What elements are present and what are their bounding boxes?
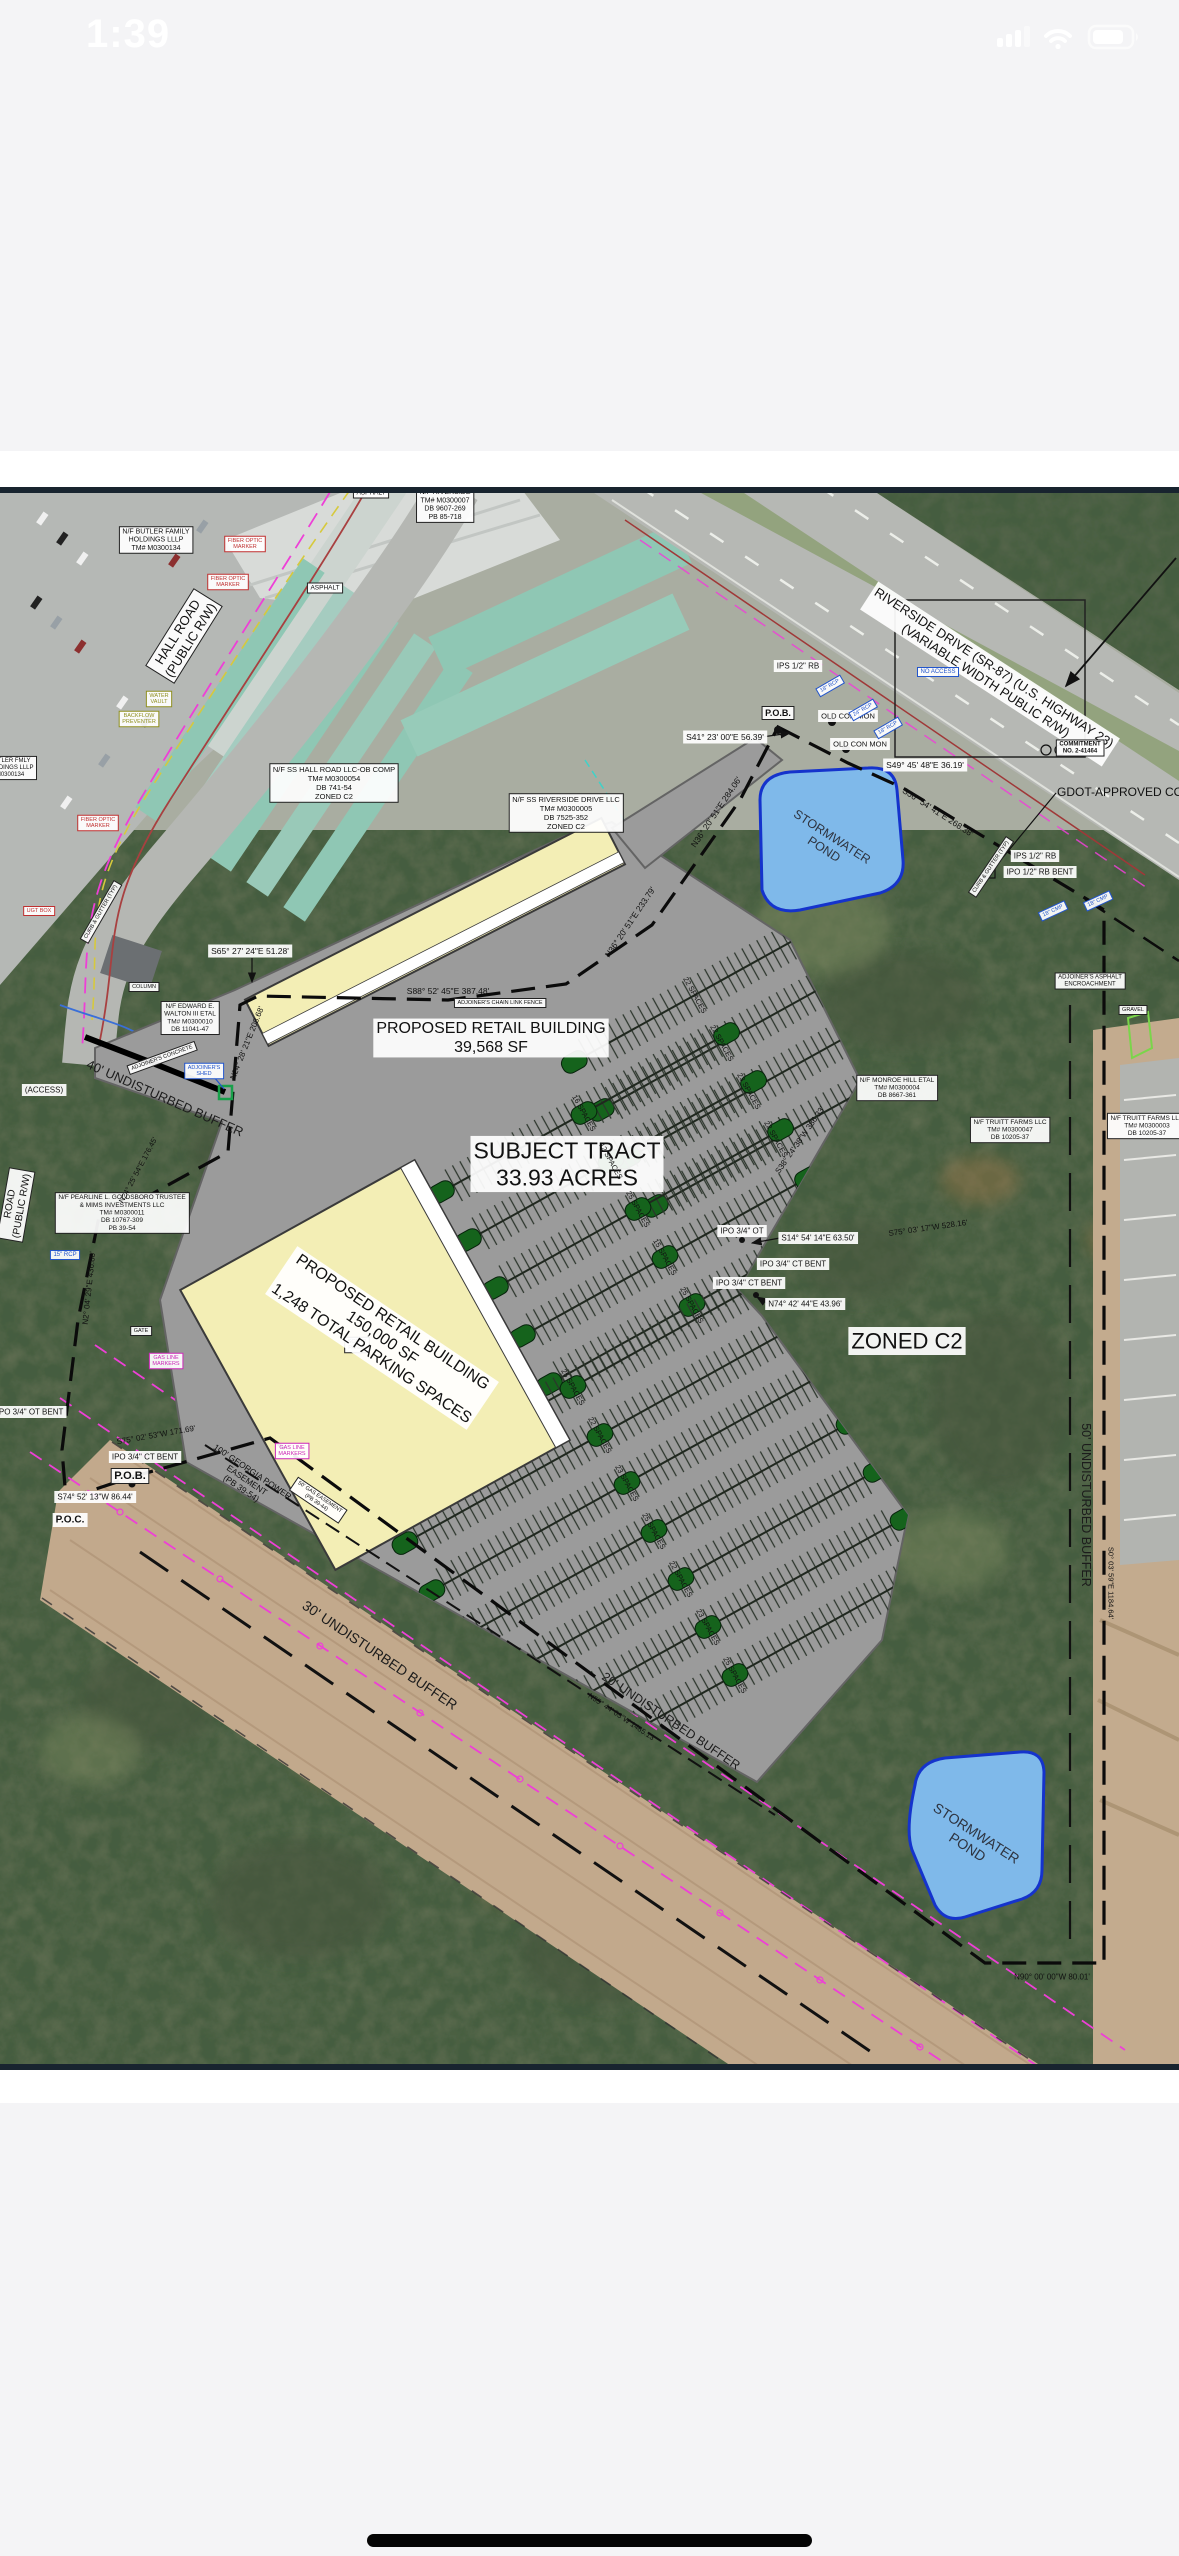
svg-text:TM# M0300010: TM# M0300010 [167, 1018, 213, 1025]
label-bearing-s0: S0° 03' 59"E 1184.64' [1107, 1547, 1116, 1620]
label-monroe-parcel: N/F MONROE HILL ETALTM# M0300004DB 8667-… [857, 1075, 938, 1100]
svg-text:PROPOSED RETAIL BUILDING: PROPOSED RETAIL BUILDING [376, 1020, 605, 1037]
existing-development-right [1093, 1018, 1179, 2070]
svg-text:DB 10205-37: DB 10205-37 [991, 1134, 1030, 1141]
svg-text:SHED: SHED [196, 1071, 211, 1077]
label-ips-rb-1: IPS 1/2" RB [774, 660, 822, 672]
label-adjoiner-asphalt: ADJOINER'S ASPHALTENCROACHMENT [1055, 973, 1125, 989]
svg-text:MARKER: MARKER [86, 823, 110, 829]
label-water-vault: WATERVAULT [146, 691, 171, 706]
svg-text:FIBER OPTIC: FIBER OPTIC [211, 576, 246, 582]
svg-text:N74° 42' 44"E 43.96': N74° 42' 44"E 43.96' [768, 1300, 842, 1309]
label-butler-parcel-2: BUTLER FMLYHOLDINGS LLLPM0300134 [0, 756, 37, 779]
label-rcp-15: 15" RCP [50, 1251, 79, 1260]
label-old-con-mon-2: OLD CON MON [830, 738, 890, 750]
svg-text:N/F BUTLER FAMILY: N/F BUTLER FAMILY [122, 528, 189, 535]
svg-text:TM# M0300047: TM# M0300047 [987, 1127, 1033, 1134]
label-no-access: NO ACCESS [917, 668, 958, 677]
label-truitt-parcel-1: N/F TRUITT FARMS LLCTM# M0300047DB 10205… [970, 1117, 1049, 1142]
svg-text:DB 10205-37: DB 10205-37 [1128, 1130, 1167, 1137]
site-plan-document[interactable]: N/F RIVERSIDETM# M0300007DB 9607-269PB 8… [0, 451, 1179, 2103]
svg-text:ADJOINER'S ASPHALT: ADJOINER'S ASPHALT [1058, 974, 1122, 980]
svg-text:TM# M0300054: TM# M0300054 [308, 774, 361, 783]
label-gate: GATE [131, 1327, 152, 1336]
svg-text:P.O.B.: P.O.B. [765, 708, 791, 718]
svg-text:PB 85-718: PB 85-718 [428, 514, 461, 521]
svg-text:IPO 3/4" OT: IPO 3/4" OT [720, 1227, 763, 1236]
home-indicator[interactable] [367, 2534, 812, 2547]
svg-text:IPO 3/4" OT BENT: IPO 3/4" OT BENT [0, 1408, 63, 1417]
label-pob-top: P.O.B. [762, 707, 794, 720]
svg-text:HOLDINGS LLLP: HOLDINGS LLLP [129, 537, 184, 544]
label-walton-parcel: N/F EDWARD E.WALTON III ETALTM# M0300010… [161, 1001, 219, 1034]
svg-text:GAS LINE: GAS LINE [279, 1445, 305, 1451]
svg-text:COLUMN: COLUMN [132, 984, 156, 990]
label-retail-building-1: PROPOSED RETAIL BUILDING39,568 SF [373, 1019, 608, 1058]
svg-text:ADJOINER'S: ADJOINER'S [188, 1065, 221, 1071]
site-plan-image: N/F RIVERSIDETM# M0300007DB 9607-269PB 8… [0, 487, 1179, 2070]
svg-text:S65° 27' 24"E 51.28': S65° 27' 24"E 51.28' [211, 946, 289, 956]
label-buffer-50: 50' UNDISTURBED BUFFER [1079, 1423, 1093, 1587]
label-bearing-n90: N90° 00' 00"W 80.01' [1014, 1973, 1090, 1982]
svg-text:UGT BOX: UGT BOX [27, 908, 52, 914]
label-bearing-s14: S14° 54' 14"E 63.50' [778, 1232, 858, 1244]
svg-text:N90° 00' 00"W 80.01': N90° 00' 00"W 80.01' [1014, 1973, 1090, 1982]
svg-text:M0300134: M0300134 [0, 772, 25, 778]
svg-text:P.O.B.: P.O.B. [114, 1470, 146, 1482]
svg-text:MARKER: MARKER [216, 582, 240, 588]
label-gas-markers-1: GAS LINEMARKERS [149, 1353, 183, 1368]
svg-text:N/F EDWARD E.: N/F EDWARD E. [166, 1003, 215, 1010]
svg-text:IPO 3/4" CT BENT: IPO 3/4" CT BENT [112, 1453, 178, 1462]
label-ipo-ct-bent-1: IPO 3/4" CT BENT [757, 1258, 829, 1270]
svg-text:IPO 1/2" RB BENT: IPO 1/2" RB BENT [1007, 868, 1074, 877]
label-bearing-s49: S49° 45' 48"E 36.19' [883, 759, 967, 772]
svg-text:ZONED C2: ZONED C2 [851, 1329, 962, 1354]
svg-text:S14° 54' 14"E 63.50': S14° 54' 14"E 63.50' [781, 1234, 855, 1243]
label-ipo-ot: IPO 3/4" OT [717, 1225, 766, 1237]
svg-text:PREVENTER: PREVENTER [122, 719, 156, 725]
label-ips-rb-2: IPS 1/2" RB [1011, 850, 1059, 862]
label-fiber-optic-2: FIBER OPTICMARKER [208, 574, 249, 589]
svg-text:S88° 52' 45"E 387.48': S88° 52' 45"E 387.48' [407, 986, 490, 996]
svg-text:SUBJECT TRACT: SUBJECT TRACT [473, 1137, 660, 1163]
label-backflow-preventer: BACKFLOWPREVENTER [119, 711, 159, 726]
svg-text:GDOT-APPROVED COMMI: GDOT-APPROVED COMMI [1057, 785, 1179, 799]
label-gas-markers-2: GAS LINEMARKERS [275, 1443, 309, 1458]
svg-text:COMMITMENT: COMMITMENT [1059, 741, 1101, 747]
svg-text:GRAVEL: GRAVEL [1122, 1007, 1144, 1013]
svg-text:GATE: GATE [134, 1328, 149, 1334]
svg-text:S0° 03' 59"E 1184.64': S0° 03' 59"E 1184.64' [1107, 1547, 1116, 1620]
svg-text:ZONED C2: ZONED C2 [315, 792, 353, 801]
iphone-screenshot: 1:39 [0, 0, 1179, 2556]
svg-text:IPO 3/4" CT BENT: IPO 3/4" CT BENT [716, 1279, 782, 1288]
svg-text:39,568 SF: 39,568 SF [454, 1039, 528, 1056]
label-adjoiner-fence: ADJOINER'S CHAIN LINK FENCE [454, 999, 545, 1008]
label-pob-bottom: P.O.B. [111, 1469, 149, 1484]
label-zoned-c2: ZONED C2 [848, 1327, 965, 1355]
svg-text:(ACCESS): (ACCESS) [25, 1086, 64, 1095]
svg-text:TM# M0300011: TM# M0300011 [99, 1210, 144, 1217]
label-ipo-ot-bent-left: IPO 3/4" OT BENT [0, 1406, 66, 1418]
svg-text:DB 10767-309: DB 10767-309 [101, 1217, 143, 1224]
label-asphalt-2: ASPHALT [307, 583, 342, 593]
svg-text:MARKER: MARKER [233, 544, 257, 550]
label-ss-hall-parcel: N/F SS HALL ROAD LLC-OB COMPTM# M0300054… [270, 764, 398, 803]
svg-text:TM# M0300004: TM# M0300004 [874, 1085, 920, 1092]
svg-text:NO. 2-41464: NO. 2-41464 [1063, 749, 1098, 755]
label-bearing-n74: N74° 42' 44"E 43.96' [765, 1298, 845, 1310]
plan-border-top [0, 487, 1179, 493]
svg-text:DB 11041-47: DB 11041-47 [171, 1026, 209, 1033]
svg-text:15" RCP: 15" RCP [53, 1252, 76, 1258]
svg-text:TM# M0300134: TM# M0300134 [131, 545, 180, 552]
svg-text:IPS 1/2" RB: IPS 1/2" RB [1014, 852, 1056, 861]
label-bearing-s88: S88° 52' 45"E 387.48' [407, 986, 490, 996]
label-truitt-parcel-2: N/F TRUITT FARMS LLCTM# M0300003DB 10205… [1107, 1113, 1179, 1138]
svg-text:NO ACCESS: NO ACCESS [920, 669, 955, 675]
label-butler-parcel: N/F BUTLER FAMILYHOLDINGS LLLPTM# M03001… [119, 527, 192, 554]
label-commitment: COMMITMENTNO. 2-41464 [1056, 740, 1104, 756]
svg-text:P.O.C.: P.O.C. [56, 1515, 85, 1526]
svg-text:ENCROACHMENT: ENCROACHMENT [1064, 982, 1116, 988]
svg-text:TM# M0300005: TM# M0300005 [540, 804, 593, 813]
svg-text:PB 39-54: PB 39-54 [108, 1225, 135, 1232]
svg-text:MARKERS: MARKERS [278, 1451, 306, 1457]
status-time: 1:39 [86, 12, 170, 57]
svg-text:N/F TRUITT FARMS LLC: N/F TRUITT FARMS LLC [1110, 1115, 1179, 1122]
svg-text:GAS LINE: GAS LINE [153, 1355, 179, 1361]
svg-text:OLD CON MON: OLD CON MON [833, 740, 887, 749]
svg-text:50' UNDISTURBED BUFFER: 50' UNDISTURBED BUFFER [1079, 1423, 1093, 1587]
status-bar: 1:39 [0, 0, 1179, 62]
label-ugt-box: UGT BOX [24, 907, 55, 916]
status-icons [997, 22, 1157, 57]
svg-text:ZONED C2: ZONED C2 [547, 822, 585, 831]
label-column: COLUMN [129, 983, 159, 992]
label-ipo-ct-bent-2: IPO 3/4" CT BENT [713, 1277, 785, 1289]
svg-text:HOLDINGS LLLP: HOLDINGS LLLP [0, 765, 34, 771]
svg-text:MARKERS: MARKERS [152, 1361, 180, 1367]
svg-text:BUTLER FMLY: BUTLER FMLY [0, 758, 30, 764]
svg-text:DB 741-54: DB 741-54 [316, 783, 352, 792]
svg-text:WATER: WATER [149, 693, 168, 699]
svg-text:ASPHALT: ASPHALT [310, 585, 339, 592]
label-poc: P.O.C. [53, 1513, 88, 1527]
label-bearing-s41: S41° 23' 00"E 56.39' [683, 731, 767, 744]
svg-text:WALTON III ETAL: WALTON III ETAL [164, 1011, 216, 1018]
svg-text:FIBER OPTIC: FIBER OPTIC [228, 538, 263, 544]
battery-icon [1089, 26, 1138, 48]
svg-text:S74° 52' 13"W 86.44': S74° 52' 13"W 86.44' [57, 1493, 133, 1502]
wifi-icon [1046, 31, 1070, 49]
label-bearing-s65: S65° 27' 24"E 51.28' [208, 945, 292, 958]
svg-text:N/F TRUITT FARMS LLC: N/F TRUITT FARMS LLC [973, 1119, 1046, 1126]
label-adjoiner-shed: ADJOINER'SSHED [185, 1063, 224, 1078]
svg-text:TM# M0300003: TM# M0300003 [1124, 1123, 1170, 1130]
svg-text:VAULT: VAULT [151, 699, 169, 705]
svg-text:N/F SS HALL ROAD LLC-OB COMP: N/F SS HALL ROAD LLC-OB COMP [273, 765, 395, 774]
label-access: (ACCESS) [22, 1084, 67, 1096]
svg-text:IPO 3/4" CT BENT: IPO 3/4" CT BENT [760, 1260, 826, 1269]
svg-text:ADJOINER'S CHAIN LINK FENCE: ADJOINER'S CHAIN LINK FENCE [457, 1000, 542, 1006]
svg-text:FIBER OPTIC: FIBER OPTIC [81, 817, 116, 823]
svg-text:DB 8667-361: DB 8667-361 [878, 1092, 917, 1099]
svg-text:DB 7525-352: DB 7525-352 [544, 813, 588, 822]
label-bearing-s74: S74° 52' 13"W 86.44' [54, 1491, 136, 1503]
svg-text:TM# M0300007: TM# M0300007 [420, 497, 469, 504]
label-ipo-rb-bent: IPO 1/2" RB BENT [1004, 866, 1077, 878]
svg-text:BACKFLOW: BACKFLOW [124, 713, 156, 719]
svg-text:S41° 23' 00"E 56.39': S41° 23' 00"E 56.39' [686, 732, 764, 742]
label-ss-riverside-parcel: N/F SS RIVERSIDE DRIVE LLCTM# M0300005DB… [509, 794, 623, 833]
plan-border-bottom [0, 2064, 1179, 2070]
svg-text:S49° 45' 48"E 36.19': S49° 45' 48"E 36.19' [886, 760, 964, 770]
label-fiber-optic-1: FIBER OPTICMARKER [225, 536, 266, 551]
label-subject-tract: SUBJECT TRACT33.93 ACRES [470, 1136, 663, 1192]
svg-text:IPS 1/2" RB: IPS 1/2" RB [777, 662, 819, 671]
svg-text:N/F MONROE HILL ETAL: N/F MONROE HILL ETAL [860, 1077, 935, 1084]
label-gdot-approved: GDOT-APPROVED COMMI [1057, 785, 1179, 799]
svg-text:DB 9607-269: DB 9607-269 [424, 506, 465, 513]
cellular-signal-icon [997, 26, 1030, 47]
svg-text:N/F SS RIVERSIDE DRIVE LLC: N/F SS RIVERSIDE DRIVE LLC [512, 795, 620, 804]
label-fiber-optic-3: FIBER OPTICMARKER [78, 815, 119, 830]
label-ipo-ct-bent-3: IPO 3/4" CT BENT [109, 1451, 181, 1463]
label-gravel: GRAVEL [1119, 1006, 1147, 1015]
